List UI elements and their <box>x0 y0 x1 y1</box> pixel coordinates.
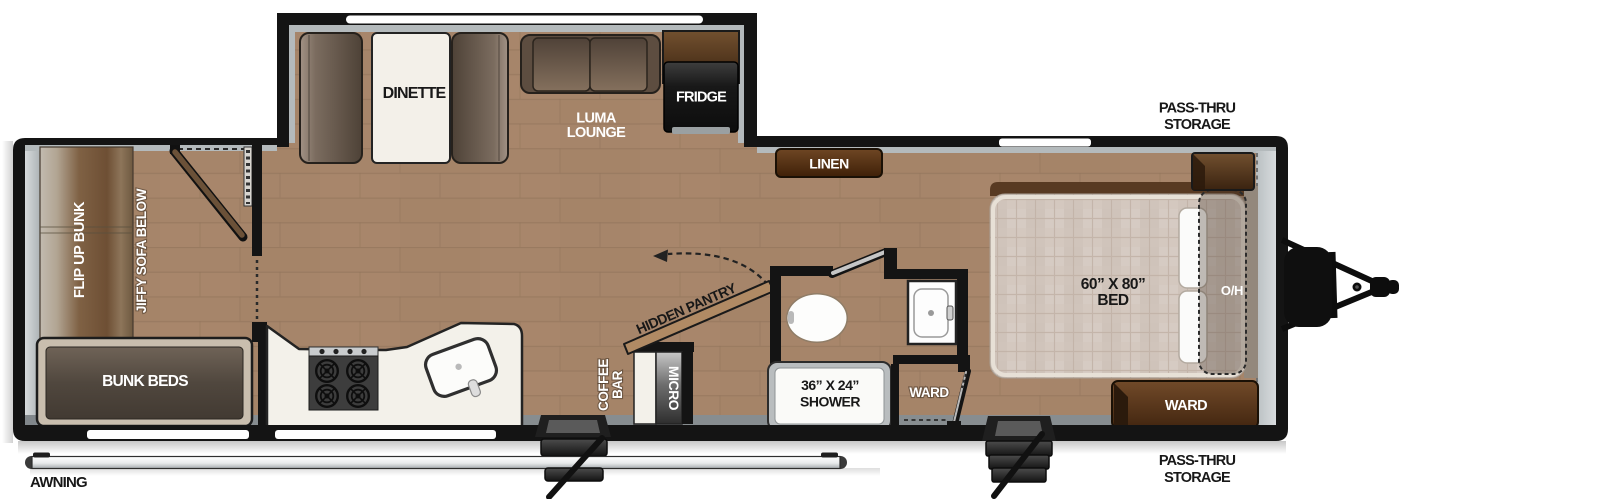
svg-text:BED: BED <box>1097 292 1129 309</box>
svg-text:PASS-THRU: PASS-THRU <box>1159 453 1236 469</box>
svg-text:PASS-THRU: PASS-THRU <box>1159 101 1236 117</box>
svg-text:O/H: O/H <box>1221 283 1243 298</box>
svg-text:JIFFY SOFA BELOW: JIFFY SOFA BELOW <box>134 188 149 313</box>
svg-text:LINEN: LINEN <box>809 156 849 172</box>
svg-text:AWNING: AWNING <box>30 474 87 491</box>
svg-text:MICRO: MICRO <box>666 366 682 411</box>
svg-text:STORAGE: STORAGE <box>1164 470 1231 486</box>
svg-text:FRIDGE: FRIDGE <box>676 90 727 106</box>
svg-text:60” X 80”: 60” X 80” <box>1081 276 1145 293</box>
svg-text:COFFEE: COFFEE <box>596 359 611 411</box>
svg-text:BUNK BEDS: BUNK BEDS <box>102 373 188 390</box>
svg-text:SHOWER: SHOWER <box>800 394 860 410</box>
svg-text:36” X 24”: 36” X 24” <box>801 377 859 393</box>
svg-text:DINETTE: DINETTE <box>383 85 447 102</box>
svg-text:WARD: WARD <box>909 385 949 400</box>
svg-text:WARD: WARD <box>1165 398 1207 414</box>
svg-text:LOUNGE: LOUNGE <box>567 125 626 141</box>
svg-text:FLIP UP BUNK: FLIP UP BUNK <box>72 201 88 298</box>
svg-text:STORAGE: STORAGE <box>1164 117 1231 133</box>
svg-text:BAR: BAR <box>610 370 625 398</box>
